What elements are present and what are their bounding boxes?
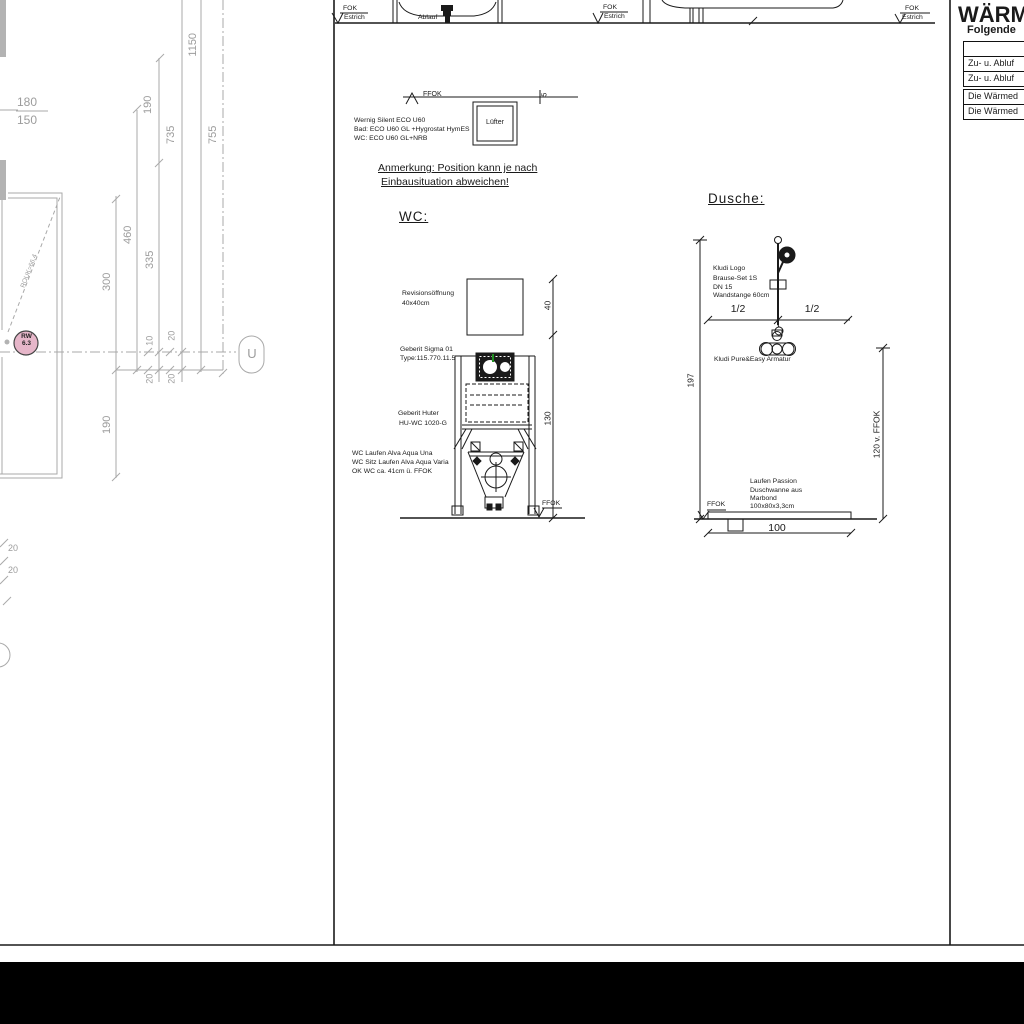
sheet-frame [0, 0, 1024, 945]
dim-label-335: 335 [145, 230, 157, 290]
wc-product-line3: OK WC ca. 41cm ü. FFOK [352, 468, 432, 475]
dim-label-300: 300 [102, 252, 114, 312]
panel-table-bottom: Die Wärmed Die Wärmed [963, 90, 1024, 120]
dim-label-half-left: 1/2 [723, 304, 753, 315]
fok-label-2: FOK [603, 4, 617, 11]
drawing-sheet: 180 150 1150 190 735 755 460 335 300 10 … [0, 0, 1024, 1024]
dim-label-10: 10 [145, 321, 154, 361]
remark-line1: Anmerkung: Position kann je nach [378, 163, 537, 174]
dim-label-20-edge2: 20 [8, 566, 18, 575]
shower-ffok-label: FFOK [707, 501, 725, 508]
fan-box-label: Lüfter [473, 119, 517, 126]
dim-label-130: 130 [544, 398, 553, 438]
rw-badge: RW 6.3 [14, 334, 39, 348]
tray-label-line2: Duschwanne aus [750, 487, 802, 494]
basin-drain [441, 5, 453, 23]
tray-label-line4: 100x80x3,3cm [750, 503, 794, 510]
dim-label-180: 180 [17, 96, 37, 109]
shower-tray [708, 512, 851, 519]
wc-product-line1: WC Laufen Alva Aqua Una [352, 450, 432, 457]
shower-mixer-drawing [760, 330, 796, 356]
section-marker-label: U [244, 347, 260, 361]
huter-label-line2: HU-WC 1020-G [399, 420, 447, 427]
fan-note-line1: Wernig Silent ECO U60 [354, 117, 425, 124]
dim-label-half-right: 1/2 [797, 304, 827, 315]
dim-label-735: 735 [166, 105, 178, 165]
dim-label-190-top: 190 [143, 75, 155, 135]
dim-label-20-edge1: 20 [8, 544, 18, 553]
estrich-label-2: Estrich [604, 13, 625, 20]
dim-label-150: 150 [17, 114, 37, 127]
plan-circle-symbol [0, 643, 10, 667]
remark-line2: Einbausituation abweichen! [381, 177, 509, 188]
table-row: Die Wärmed [963, 89, 1024, 105]
fan-note-line2: Bad: ECO U60 GL +Hygrostat HymES [354, 126, 470, 133]
sheet-linework [0, 0, 1024, 1024]
revision-opening-square [467, 279, 523, 335]
panel-table-top: Zu- u. Abluf Zu- u. Abluf [963, 42, 1024, 87]
sigma-label-line1: Geberit Sigma 01 [400, 346, 453, 353]
wc-heading: WC: [399, 210, 428, 224]
dim-label-20-lower-left: 20 [145, 359, 154, 399]
dim-label-5: 5 [541, 83, 548, 107]
plan-linework [0, 0, 264, 667]
shower-heading: Dusche: [708, 192, 765, 206]
brause-label-line1: Kludi Logo [713, 265, 745, 272]
table-row: Zu- u. Abluf [963, 71, 1024, 87]
brause-label-line3: DN 15 [713, 284, 732, 291]
table-row [963, 41, 1024, 57]
dim-label-40: 40 [544, 285, 553, 325]
dim-label-100: 100 [755, 523, 799, 534]
estrich-label-3: Estrich [902, 14, 923, 21]
panel-title: WÄRM [958, 3, 1024, 26]
dim-label-460: 460 [123, 205, 135, 265]
title-block-bar [0, 962, 1024, 1024]
dim-label-120-ffok: 120 v. FFOK [873, 389, 882, 479]
dim-label-20-upper: 20 [167, 316, 176, 356]
dim-label-20-lower-right: 20 [167, 359, 176, 399]
dimension-ticks [0, 54, 227, 605]
rw-badge-line2: 6.3 [14, 341, 39, 348]
wc-installation-drawing [452, 353, 539, 515]
revision-label-line1: Revisionsöffnung [402, 290, 454, 297]
tray-label-line1: Laufen Passion [750, 478, 797, 485]
sigma-label-line2: Type:115.770.11.5 [400, 355, 455, 362]
ffok-bottom-label: FFOK [542, 500, 560, 507]
bathtub-outline [662, 0, 843, 8]
table-row: Die Wärmed [963, 104, 1024, 120]
wc-product-line2: WC Sitz Laufen Alva Aqua Varia [352, 459, 449, 466]
wall-segment [0, 0, 6, 57]
estrich-label-1: Estrich [344, 14, 365, 21]
fok-label-1: FOK [343, 5, 357, 12]
table-row: Zu- u. Abluf [963, 56, 1024, 72]
dim-label-197: 197 [687, 355, 696, 405]
top-section-linework [332, 0, 935, 25]
ffok-level-marker-icon [406, 93, 418, 104]
brause-label-line4: Wandstange 60cm [713, 292, 769, 299]
panel-subtitle: Folgende [967, 25, 1016, 37]
mixer-label: Kludi Pure&Easy Armatur [714, 356, 791, 363]
dim-label-755: 755 [208, 105, 220, 165]
dim-label-1150: 1150 [188, 15, 200, 75]
ffok-top-label: FFOK [423, 91, 442, 98]
ablauf-label: Ablauf [418, 14, 437, 21]
fan-note-line3: WC: ECO U60 GL+NRB [354, 135, 427, 142]
tray-label-line3: Marbond [750, 495, 777, 502]
huter-label-line1: Geberit Huter [398, 410, 439, 417]
dim-label-190-bottom: 190 [102, 395, 114, 455]
revision-label-line2: 40x40cm [402, 300, 430, 307]
wall-segment [0, 160, 6, 200]
fok-label-3: FOK [905, 5, 919, 12]
brause-label-line2: Brause-Set 1S [713, 275, 757, 282]
